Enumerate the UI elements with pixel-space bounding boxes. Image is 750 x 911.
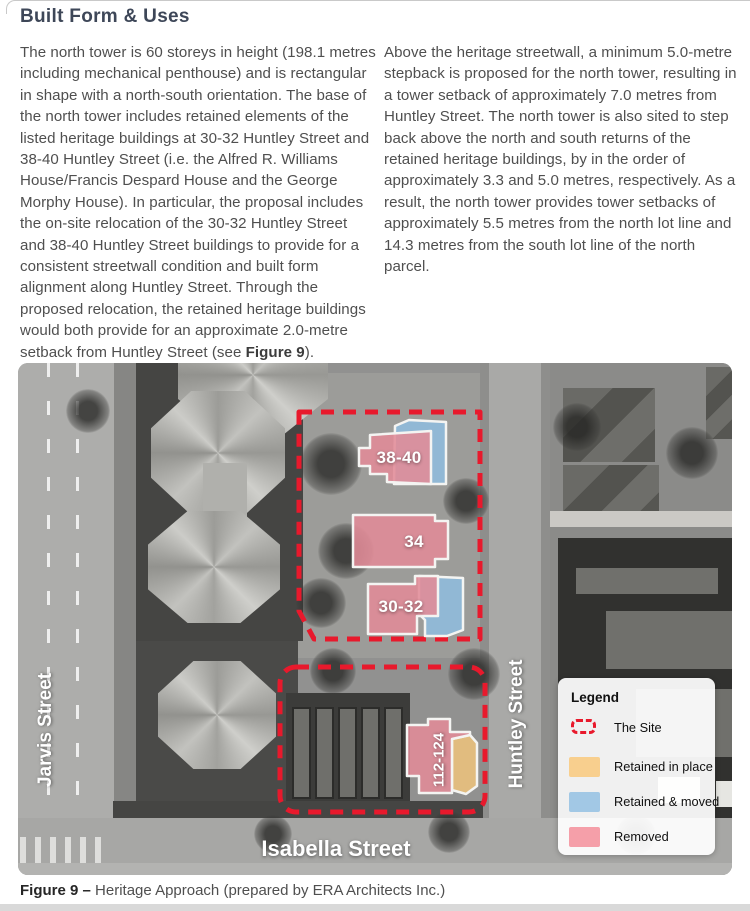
building-label-34: 34 xyxy=(404,532,424,552)
street-label-jarvis: Jarvis Street xyxy=(35,673,57,787)
building-label-112-124: 112-124 xyxy=(431,733,448,787)
figure-caption: Figure 9 – Heritage Approach (prepared b… xyxy=(20,882,445,899)
body-text-left-column: The north tower is 60 storeys in height … xyxy=(20,42,376,363)
legend-title: Legend xyxy=(571,690,619,705)
report-page: Built Form & Uses The north tower is 60 … xyxy=(0,0,750,911)
legend-item-label: Retained in place xyxy=(614,759,713,774)
street-label-huntley: Huntley Street xyxy=(506,660,528,789)
section-heading: Built Form & Uses xyxy=(20,6,190,28)
legend-item-retained-moved: Retained & moved xyxy=(558,790,715,814)
right-paragraph-text: Above the heritage streetwall, a minimum… xyxy=(384,44,737,275)
removed-swatch xyxy=(569,827,600,847)
building-label-30-32: 30-32 xyxy=(379,597,424,617)
building-34-removed xyxy=(353,515,448,567)
legend-item-label: The Site xyxy=(614,720,662,735)
left-paragraph-text: The north tower is 60 storeys in height … xyxy=(20,44,376,361)
left-paragraph-end: ). xyxy=(305,344,314,361)
building-label-38-40: 38-40 xyxy=(377,448,422,468)
legend-item-label: Removed xyxy=(614,829,669,844)
aerial-map-figure: 38-40 34 30-32 112-124 Jarvis Street Hun… xyxy=(18,363,732,875)
building-112-124-retained-in-place xyxy=(452,735,477,794)
site-outline-swatch xyxy=(571,719,596,734)
figure-caption-label: Figure 9 – xyxy=(20,882,95,899)
figure-caption-text: Heritage Approach (prepared by ERA Archi… xyxy=(95,882,445,899)
body-text-right-column: Above the heritage streetwall, a minimum… xyxy=(384,42,738,277)
bottom-divider-bar xyxy=(0,904,750,911)
figure-reference: Figure 9 xyxy=(246,344,305,361)
retained-in-place-swatch xyxy=(569,757,600,777)
street-label-isabella: Isabella Street xyxy=(261,836,410,862)
legend-item-label: Retained & moved xyxy=(614,794,719,809)
legend-item-removed: Removed xyxy=(558,825,715,849)
legend-item-site: The Site xyxy=(558,716,715,740)
legend-item-retained-in-place: Retained in place xyxy=(558,755,715,779)
retained-moved-swatch xyxy=(569,792,600,812)
map-legend: Legend The Site Retained in place Retain… xyxy=(558,678,715,855)
